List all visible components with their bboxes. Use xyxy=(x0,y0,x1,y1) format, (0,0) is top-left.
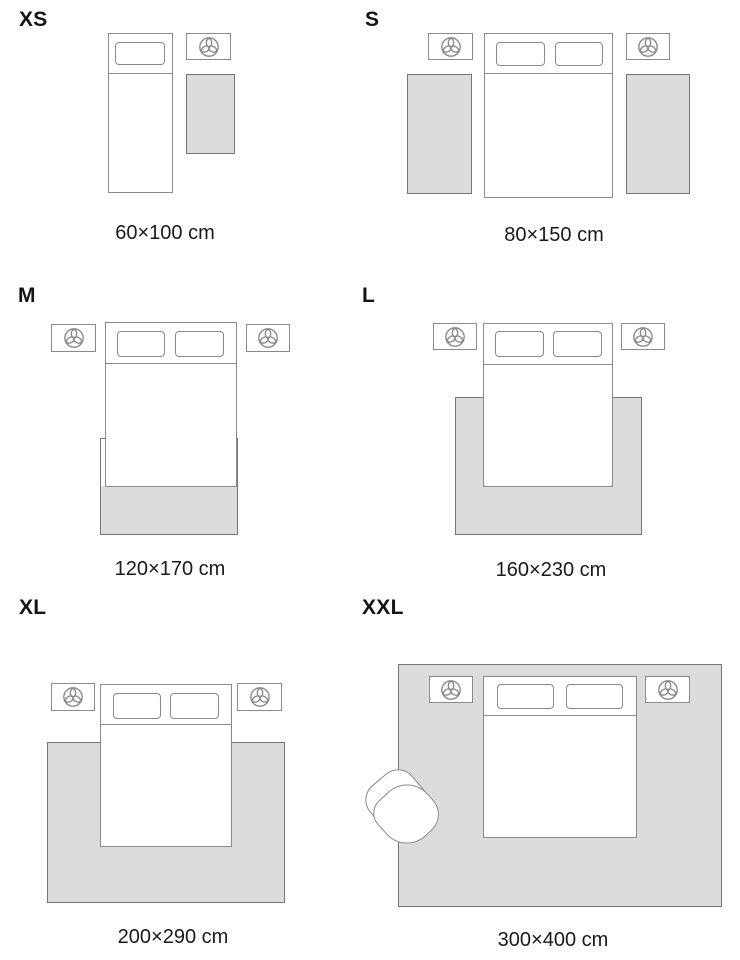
bed-double-m xyxy=(105,322,237,487)
dimension-label-s: 80×150 cm xyxy=(454,224,654,247)
pillow xyxy=(555,42,603,66)
plant-icon xyxy=(440,679,462,701)
size-label-m: M xyxy=(18,284,36,308)
nightstand-xs xyxy=(186,33,231,60)
pillow xyxy=(117,331,165,357)
rug-s-right xyxy=(626,74,690,194)
nightstand-xl-right xyxy=(237,683,282,711)
size-label-xl: XL xyxy=(19,596,46,620)
bed-double-xl xyxy=(100,684,232,847)
dimension-label-xs: 60×100 cm xyxy=(65,222,265,245)
pillow xyxy=(175,331,224,357)
plant-icon xyxy=(637,36,659,58)
pillow xyxy=(566,684,623,709)
size-label-xxl: XXL xyxy=(362,596,404,620)
nightstand-xl-left xyxy=(51,683,95,711)
bed-headboard xyxy=(484,677,636,716)
bed-single-xs xyxy=(108,33,173,193)
bed-headboard xyxy=(484,324,612,365)
nightstand-m-left xyxy=(51,324,96,352)
rug-m-exposed-area xyxy=(101,486,237,534)
rug-xs xyxy=(186,74,235,154)
pillow xyxy=(553,331,602,357)
nightstand-l-left xyxy=(433,323,477,350)
plant-icon xyxy=(632,326,654,348)
pillow xyxy=(496,42,545,66)
dimension-label-l: 160×230 cm xyxy=(451,559,651,582)
bed-double-xxl xyxy=(483,676,637,838)
bed-double-s xyxy=(484,33,613,198)
pillow xyxy=(170,693,219,719)
plant-icon xyxy=(440,36,462,58)
bed-headboard xyxy=(109,34,172,74)
pillow xyxy=(115,42,165,65)
rug-size-guide: XS 60×100 cm S xyxy=(0,0,740,960)
size-label-xs: XS xyxy=(19,8,48,32)
size-label-s: S xyxy=(365,8,379,32)
plant-icon xyxy=(63,327,85,349)
plant-icon xyxy=(198,36,220,58)
nightstand-l-right xyxy=(621,323,665,350)
size-label-l: L xyxy=(362,284,375,308)
dimension-label-xl: 200×290 cm xyxy=(73,926,273,949)
bed-headboard xyxy=(101,685,231,725)
nightstand-s-left xyxy=(428,33,473,60)
rug-s-left xyxy=(407,74,472,194)
bed-headboard xyxy=(485,34,612,74)
plant-icon xyxy=(657,679,679,701)
plant-icon xyxy=(62,686,84,708)
nightstand-m-right xyxy=(246,324,290,352)
dimension-label-m: 120×170 cm xyxy=(70,558,270,581)
bed-double-l xyxy=(483,323,613,487)
dimension-label-xxl: 300×400 cm xyxy=(453,929,653,952)
bed-headboard xyxy=(106,323,236,364)
plant-icon xyxy=(249,686,271,708)
pillow xyxy=(113,693,161,719)
pillow xyxy=(495,331,544,357)
nightstand-xxl-right xyxy=(645,676,690,703)
plant-icon xyxy=(257,327,279,349)
nightstand-s-right xyxy=(626,33,670,60)
plant-icon xyxy=(444,326,466,348)
pillow xyxy=(497,684,554,709)
nightstand-xxl-left xyxy=(429,676,473,703)
